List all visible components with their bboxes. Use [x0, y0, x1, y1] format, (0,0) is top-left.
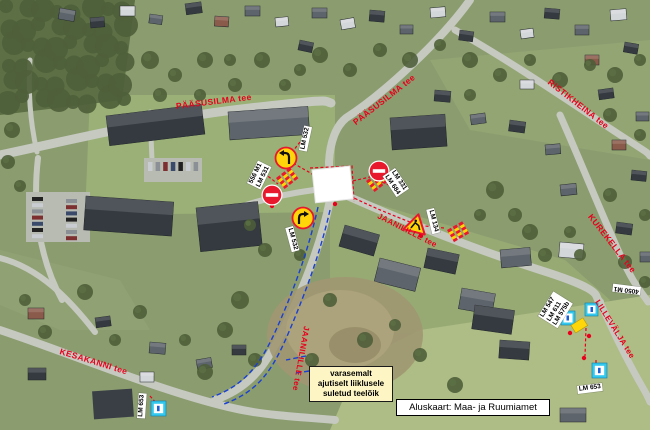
building: [369, 10, 385, 22]
building: [640, 252, 650, 262]
building: [95, 316, 111, 328]
parked-car: [178, 162, 183, 171]
tree-highlight: [143, 53, 151, 61]
parked-car: [171, 162, 176, 171]
tree-highlight: [609, 69, 616, 76]
parking-sign-3: [592, 363, 607, 378]
tree-highlight: [181, 336, 186, 341]
building: [615, 222, 632, 235]
basemap-credit: Aluskaart: Maa- ja Ruumiamet: [396, 399, 550, 416]
tree-highlight: [391, 321, 396, 326]
building: [459, 30, 474, 42]
building: [140, 372, 154, 382]
parked-car: [66, 224, 77, 228]
building: [400, 25, 413, 34]
tree-highlight: [281, 81, 286, 86]
building: [430, 7, 446, 18]
tree-highlight: [314, 49, 321, 56]
tree-highlight: [449, 379, 456, 386]
tree-highlight: [296, 66, 301, 71]
tree-highlight: [466, 91, 471, 96]
parked-car: [32, 216, 43, 220]
building: [340, 18, 356, 30]
parked-car: [156, 162, 161, 171]
detour-sign-north: [276, 148, 297, 169]
tree-highlight: [155, 90, 161, 96]
building: [214, 16, 229, 27]
tree-highlight: [260, 245, 266, 251]
building: [508, 120, 525, 133]
tree-highlight: [135, 307, 141, 313]
tree-highlight: [256, 54, 263, 61]
building: [636, 112, 649, 121]
building: [623, 42, 639, 54]
tree-highlight: [404, 54, 411, 61]
tree-highlight: [250, 355, 256, 361]
tree-highlight: [199, 54, 206, 61]
tree-highlight: [524, 226, 531, 233]
tree-highlight: [21, 296, 26, 301]
building: [544, 8, 560, 19]
tree-highlight: [359, 334, 366, 341]
tree-highlight: [246, 221, 251, 226]
tree-highlight: [296, 251, 301, 256]
parked-car: [66, 236, 77, 240]
tree-highlight: [436, 41, 441, 46]
building: [149, 342, 166, 354]
parked-car: [66, 211, 77, 215]
tree-highlight: [307, 355, 313, 361]
tree-highlight: [636, 131, 641, 136]
tree-highlight: [566, 228, 571, 233]
tree-highlight: [3, 157, 9, 163]
parked-car: [32, 234, 43, 238]
building: [28, 308, 44, 319]
tree: [117, 92, 131, 106]
tree-highlight: [605, 110, 611, 116]
building: [520, 80, 534, 89]
tree-highlight: [576, 251, 581, 256]
tree-highlight: [375, 45, 381, 51]
tree-highlight: [233, 293, 241, 301]
tree-highlight: [196, 91, 201, 96]
tree: [78, 95, 97, 114]
building: [490, 12, 505, 22]
building: [90, 17, 105, 28]
building: [120, 6, 135, 16]
tree: [15, 89, 29, 103]
tree-highlight: [16, 182, 21, 187]
tree: [63, 35, 77, 49]
tree-highlight: [636, 56, 641, 61]
building: [149, 14, 163, 25]
tree-highlight: [605, 190, 611, 196]
building: [500, 247, 531, 268]
building: [84, 196, 174, 236]
parked-car: [32, 222, 43, 226]
parked-car: [32, 197, 43, 201]
tree-highlight: [510, 210, 516, 216]
building: [560, 183, 577, 196]
tree-highlight: [325, 295, 331, 301]
building: [610, 9, 627, 21]
tree-highlight: [476, 211, 481, 216]
building: [185, 2, 202, 15]
building: [434, 90, 451, 102]
building: [560, 408, 586, 422]
note-line: varasemalt: [311, 369, 391, 379]
tree-highlight: [495, 70, 501, 76]
tree-highlight: [464, 54, 471, 61]
parked-car: [194, 162, 199, 171]
note-line: suletud teelõik: [311, 389, 391, 399]
parked-car: [66, 199, 77, 203]
building: [275, 17, 289, 27]
traffic-plan-map: PÄÄSUSILMA tee PÄÄSUSILMA tee RISTIKHEIN…: [0, 0, 650, 430]
building: [575, 25, 589, 35]
tree-highlight: [641, 211, 646, 216]
building: [499, 340, 530, 360]
building: [598, 88, 614, 100]
tree-highlight: [226, 56, 231, 61]
tree-highlight: [199, 366, 206, 373]
parked-car: [163, 162, 168, 171]
parked-car: [32, 203, 43, 207]
building: [232, 345, 246, 355]
parked-car: [148, 162, 153, 171]
parked-car: [66, 230, 77, 234]
building: [520, 28, 534, 39]
tree: [114, 13, 138, 37]
building: [28, 368, 46, 380]
tree-highlight: [526, 56, 531, 61]
tree-highlight: [40, 327, 46, 333]
tree-highlight: [230, 80, 236, 86]
parked-car: [32, 228, 43, 232]
building: [390, 114, 447, 150]
tree-highlight: [111, 336, 116, 341]
tree-highlight: [586, 61, 591, 66]
tree-highlight: [488, 183, 496, 191]
tree-highlight: [170, 70, 176, 76]
building: [312, 8, 327, 18]
tree-highlight: [641, 278, 646, 283]
no-entry-sign-west: [262, 185, 283, 206]
tree-highlight: [79, 286, 86, 293]
tree-highlight: [345, 65, 351, 71]
covered-intersection: [312, 166, 353, 203]
detour-sign-south: [293, 208, 314, 229]
building: [545, 144, 561, 155]
building: [470, 113, 486, 125]
tree-highlight: [219, 324, 226, 331]
building: [245, 6, 260, 16]
parking-sign-west: [151, 401, 166, 416]
parked-car: [32, 209, 43, 213]
closure-note: varasemalt ajutiselt liiklusele suletud …: [309, 366, 393, 402]
parked-car: [66, 218, 77, 222]
building: [612, 140, 626, 150]
parked-car: [186, 162, 191, 171]
tree-highlight: [415, 350, 421, 356]
building: [228, 106, 310, 140]
building: [631, 170, 647, 182]
note-line: ajutiselt liiklusele: [311, 379, 391, 389]
tree: [116, 53, 135, 72]
parked-car: [66, 205, 77, 209]
tree-highlight: [6, 124, 13, 131]
tree: [31, 17, 45, 31]
tree: [95, 53, 109, 67]
tree-highlight: [540, 250, 546, 256]
